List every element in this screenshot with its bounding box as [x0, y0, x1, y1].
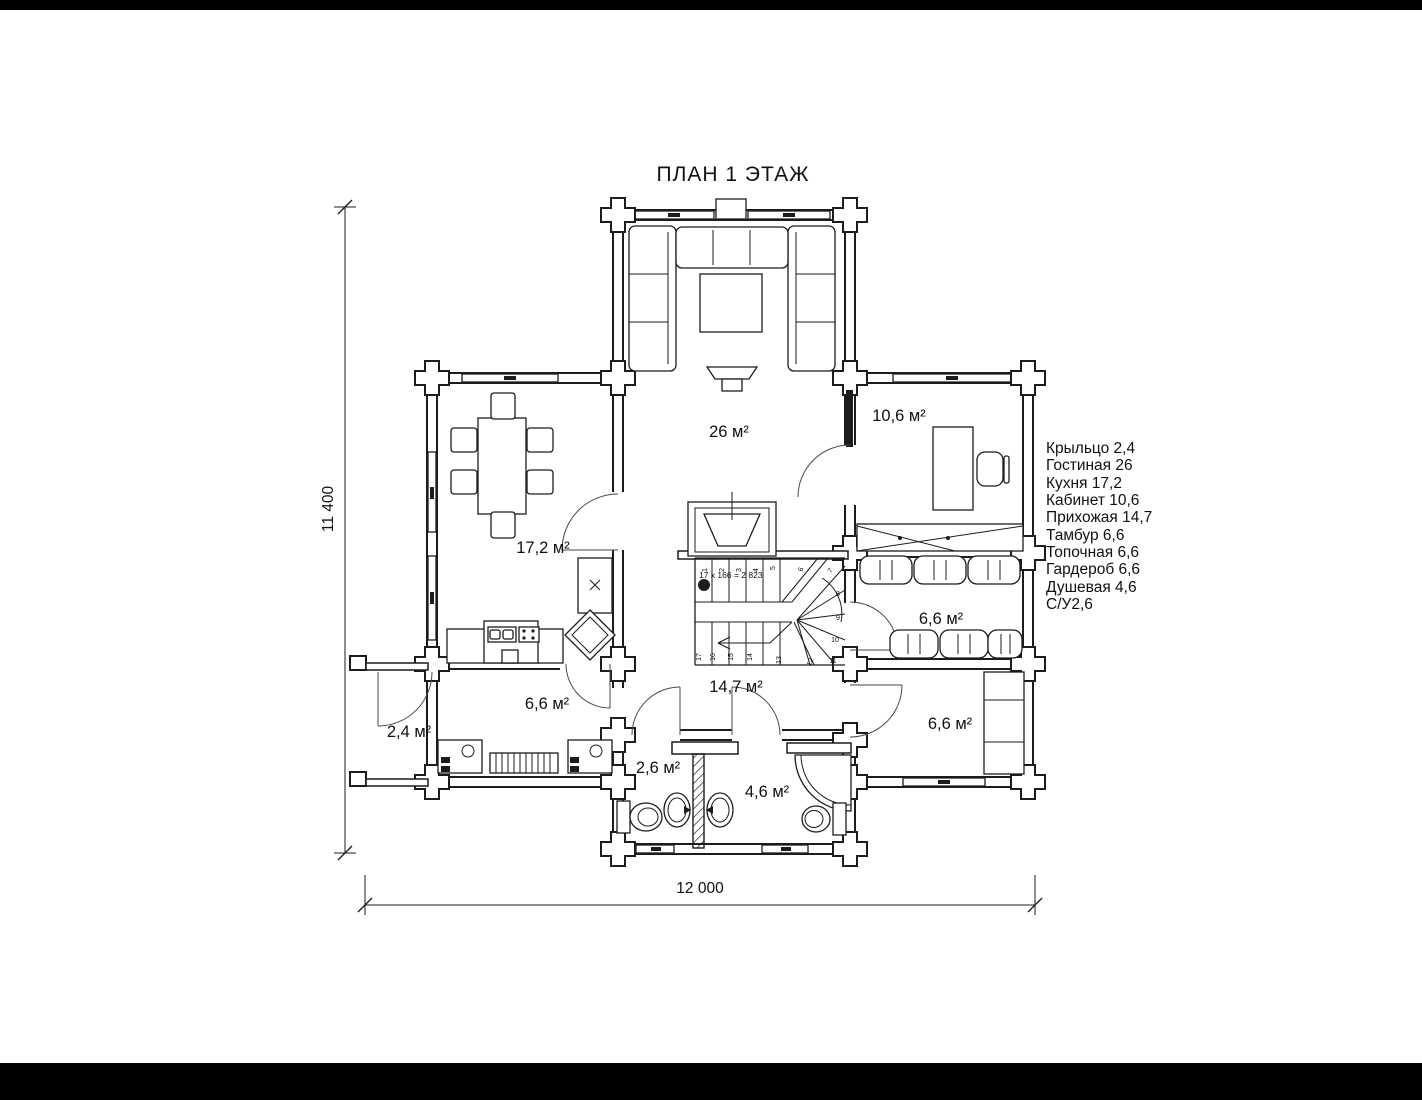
toilet-tank-2 [833, 803, 846, 835]
svg-text:8: 8 [836, 591, 840, 598]
legend-item: Кухня 17,2 [1046, 475, 1122, 492]
fireplace [688, 492, 776, 556]
chair [527, 428, 553, 452]
shower-stub-wall [787, 743, 851, 753]
chair [451, 470, 477, 494]
floor-plan-canvas: 17 x 166 = 2 823 1 2 3 4 5 6 7 8 9 10 11… [0, 0, 1422, 1100]
chair [491, 393, 515, 419]
legend-item: Тамбур 6,6 [1046, 527, 1124, 544]
sofa-left [629, 226, 676, 371]
office-door-leaf [846, 390, 853, 447]
stair-start-dot [698, 579, 710, 591]
toilet-bowl [630, 803, 662, 831]
legend-item: Крыльцо 2,4 [1046, 440, 1135, 457]
svg-text:10: 10 [831, 637, 839, 644]
wardrobe-label: 6,6 м² [919, 610, 964, 628]
height-dimension: 11 400 [320, 485, 337, 532]
legend-item: С/У2,6 [1046, 596, 1093, 613]
legend-item: Прихожая 14,7 [1046, 509, 1152, 526]
svg-text:13: 13 [776, 656, 783, 664]
desk [933, 427, 973, 510]
page-title: ПЛАН 1 ЭТАЖ [656, 163, 809, 186]
porch-label: 2,4 м² [387, 723, 432, 741]
width-dimension: 12 000 [676, 880, 724, 897]
porch-post-top [350, 656, 366, 670]
boiler-label: 6,6 м² [928, 715, 973, 733]
svg-text:2: 2 [719, 568, 726, 572]
chimney-block [716, 199, 746, 219]
shower-label: 4,6 м² [745, 783, 790, 801]
office-chair [977, 452, 1003, 486]
letterbox-bottom [0, 1063, 1422, 1100]
legend-item: Кабинет 10,6 [1046, 492, 1139, 509]
legend-item: Душевая 4,6 [1046, 579, 1137, 596]
letterbox-top [0, 0, 1422, 10]
porch-beam-bottom [366, 779, 428, 786]
toilet-bowl-2 [802, 806, 830, 832]
kitchen-label: 17,2 м² [516, 539, 570, 557]
svg-text:16: 16 [710, 653, 717, 661]
living-room-label: 26 м² [709, 423, 749, 441]
svg-text:4: 4 [753, 568, 760, 572]
boiler-cabinet [984, 672, 1024, 774]
legend-item: Топочная 6,6 [1046, 544, 1139, 561]
svg-text:11: 11 [829, 658, 836, 665]
dining-table [478, 418, 526, 514]
tambour-label: 6,6 м² [525, 695, 570, 713]
chair [451, 428, 477, 452]
sofa-top [676, 227, 788, 268]
chair [527, 470, 553, 494]
toilet-tank [617, 801, 630, 833]
sofa-right [788, 226, 835, 371]
office-label: 10,6 м² [872, 407, 926, 425]
chair [491, 512, 515, 538]
svg-text:3: 3 [736, 568, 743, 572]
stove [519, 627, 539, 642]
wc-partition-hatched [693, 754, 704, 848]
coffee-table [700, 274, 762, 332]
porch-beam-top [366, 663, 428, 670]
porch-post-bottom [350, 772, 366, 786]
wc-label: 2,6 м² [636, 759, 681, 777]
legend-item: Гардероб 6,6 [1046, 561, 1140, 578]
svg-text:5: 5 [770, 566, 777, 570]
wc-partition-cap [672, 742, 738, 754]
svg-text:9: 9 [836, 615, 840, 622]
screenshot-frame: 17 x 166 = 2 823 1 2 3 4 5 6 7 8 9 10 11… [0, 0, 1422, 1100]
svg-text:1: 1 [702, 568, 709, 572]
tv-stand [707, 367, 757, 379]
hall-label: 14,7 м² [709, 678, 763, 696]
svg-text:17: 17 [696, 653, 703, 661]
svg-text:15: 15 [728, 653, 735, 661]
entrance-steps [490, 753, 558, 773]
svg-text:14: 14 [747, 653, 754, 661]
legend-item: Гостиная 26 [1046, 457, 1133, 474]
